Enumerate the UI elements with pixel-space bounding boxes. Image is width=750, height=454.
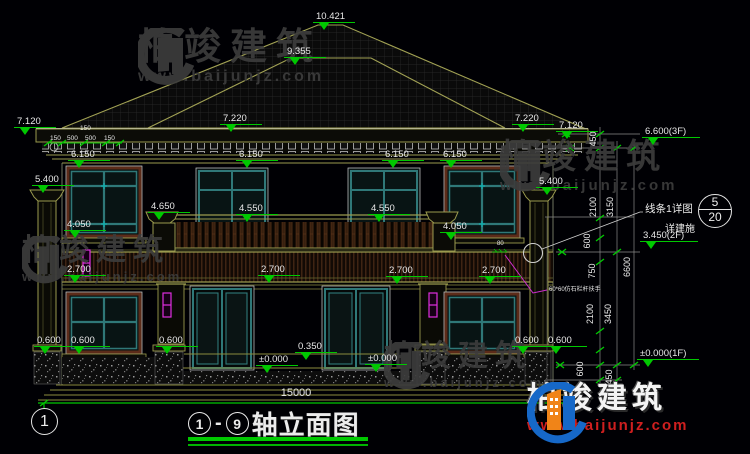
level-marker: 4.050 <box>64 219 106 238</box>
detail-callout: 线条1详图 5 20 详建施 <box>645 201 745 235</box>
title-underline-thick <box>188 437 368 441</box>
railing-note-tick: 80 <box>497 241 504 247</box>
title-dash: - <box>215 412 222 435</box>
level-marker: 6.150 <box>382 149 424 168</box>
vertical-dim-text: 600 <box>582 233 592 248</box>
level-marker: 4.050 <box>440 221 482 240</box>
cad-elevation-screenshot: 柏竣建筑 www.baijunjz.com 柏竣建筑 www.baijunjz.… <box>0 0 750 454</box>
svg-text:7.220: 7.220 <box>515 113 539 124</box>
vertical-dim-text: 2100 <box>588 197 598 217</box>
svg-text:9.355: 9.355 <box>287 46 311 57</box>
level-marker: 2.700 <box>258 264 300 283</box>
level-marker: 4.550 <box>368 203 410 222</box>
svg-text:6.150: 6.150 <box>385 149 409 160</box>
level-marker: 4.650 <box>148 201 190 220</box>
level-marker: 5.400 <box>32 174 74 193</box>
svg-text:7.220: 7.220 <box>223 113 247 124</box>
svg-text:0.600: 0.600 <box>71 335 95 346</box>
level-marker: 2.700 <box>64 264 106 283</box>
company-logo: 柏竣建筑 www.baijunjz.com <box>527 382 688 434</box>
level-marker: 7.120 <box>14 116 56 135</box>
level-marker: 0.600 <box>156 335 198 354</box>
level-marker: 2.700 <box>479 265 521 284</box>
level-marker: 9.355 <box>284 46 326 65</box>
svg-text:4.050: 4.050 <box>443 221 467 232</box>
vertical-dim-text: 3450 <box>603 304 613 324</box>
svg-text:±0.000: ±0.000 <box>368 353 397 364</box>
title-underline-thin <box>188 444 368 446</box>
level-marker: 5.400 <box>536 176 578 195</box>
level-marker: 0.600 <box>68 335 110 354</box>
svg-text:0.600: 0.600 <box>548 335 572 346</box>
vertical-dim-text: 600 <box>575 361 585 376</box>
detail-ref-sheet: 20 <box>708 210 721 225</box>
svg-text:0.600: 0.600 <box>37 335 61 346</box>
level-marker: 7.220 <box>512 113 554 132</box>
level-marker: 6.150 <box>68 149 110 168</box>
level-marker: 10.421 <box>313 11 355 30</box>
eave-dim-text: 500 <box>67 135 78 142</box>
svg-text:±0.000: ±0.000 <box>259 354 288 365</box>
svg-text:4.650: 4.650 <box>151 201 175 212</box>
svg-text:2.700: 2.700 <box>261 264 285 275</box>
svg-text:5.400: 5.400 <box>539 176 563 187</box>
svg-text:0.600: 0.600 <box>159 335 183 346</box>
level-marker: 7.220 <box>220 113 262 132</box>
level-marker: 4.550 <box>236 203 278 222</box>
svg-text:6.150: 6.150 <box>239 149 263 160</box>
overall-width-dim: 15000 <box>281 387 312 399</box>
level-marker: 0.600 <box>34 335 76 354</box>
svg-text:0.600: 0.600 <box>515 335 539 346</box>
level-marker: 6.150 <box>236 149 278 168</box>
detail-ref-number: 5 <box>699 195 731 210</box>
company-logo-icon <box>527 382 587 446</box>
level-marker: 2.700 <box>386 265 428 284</box>
level-marker: ±0.000 <box>365 353 407 372</box>
vertical-dim-text: 2100 <box>585 304 595 324</box>
svg-text:6.150: 6.150 <box>71 149 95 160</box>
level-marker: 0.350 <box>295 341 337 360</box>
svg-text:4.050: 4.050 <box>67 219 91 230</box>
title-axis-end-bubble: 9 <box>226 412 249 435</box>
vertical-dim-text: 3150 <box>605 197 615 217</box>
svg-text:2.700: 2.700 <box>482 265 506 276</box>
level-marker: ±0.000(1F) <box>637 348 699 367</box>
title-axis-start-bubble: 1 <box>188 412 211 435</box>
svg-text:5.400: 5.400 <box>35 174 59 185</box>
railing-note-text: 60*60仿石栏杆扶手 <box>549 285 601 293</box>
svg-text:7.120: 7.120 <box>559 120 583 131</box>
level-marker: 0.600 <box>545 335 587 354</box>
svg-text:±0.000(1F): ±0.000(1F) <box>640 348 686 359</box>
level-marker: ±0.000 <box>256 354 298 373</box>
svg-text:10.421: 10.421 <box>316 11 345 22</box>
svg-text:2.700: 2.700 <box>67 264 91 275</box>
svg-text:7.120: 7.120 <box>17 116 41 127</box>
vertical-dim-text: 6600 <box>622 257 632 277</box>
vertical-dim-text: 450 <box>588 131 598 146</box>
svg-text:0.350: 0.350 <box>298 341 322 352</box>
svg-text:4.550: 4.550 <box>239 203 263 214</box>
vertical-dim-text: 750 <box>587 263 597 278</box>
detail-reference-bubble: 5 20 <box>698 194 732 228</box>
eave-dim-text: 500 <box>85 135 96 142</box>
svg-text:4.550: 4.550 <box>371 203 395 214</box>
svg-text:6.600(3F): 6.600(3F) <box>645 126 686 137</box>
eave-dim-text: 150 <box>50 135 61 142</box>
eave-dim-text: 150 <box>104 135 115 142</box>
eave-dim-text: 150 <box>80 125 91 132</box>
svg-text:6.150: 6.150 <box>443 149 467 160</box>
svg-text:2.700: 2.700 <box>389 265 413 276</box>
axis-bubble-1: 1 <box>31 408 58 435</box>
level-marker: 6.150 <box>440 149 482 168</box>
level-marker: 6.600(3F) <box>642 126 700 145</box>
